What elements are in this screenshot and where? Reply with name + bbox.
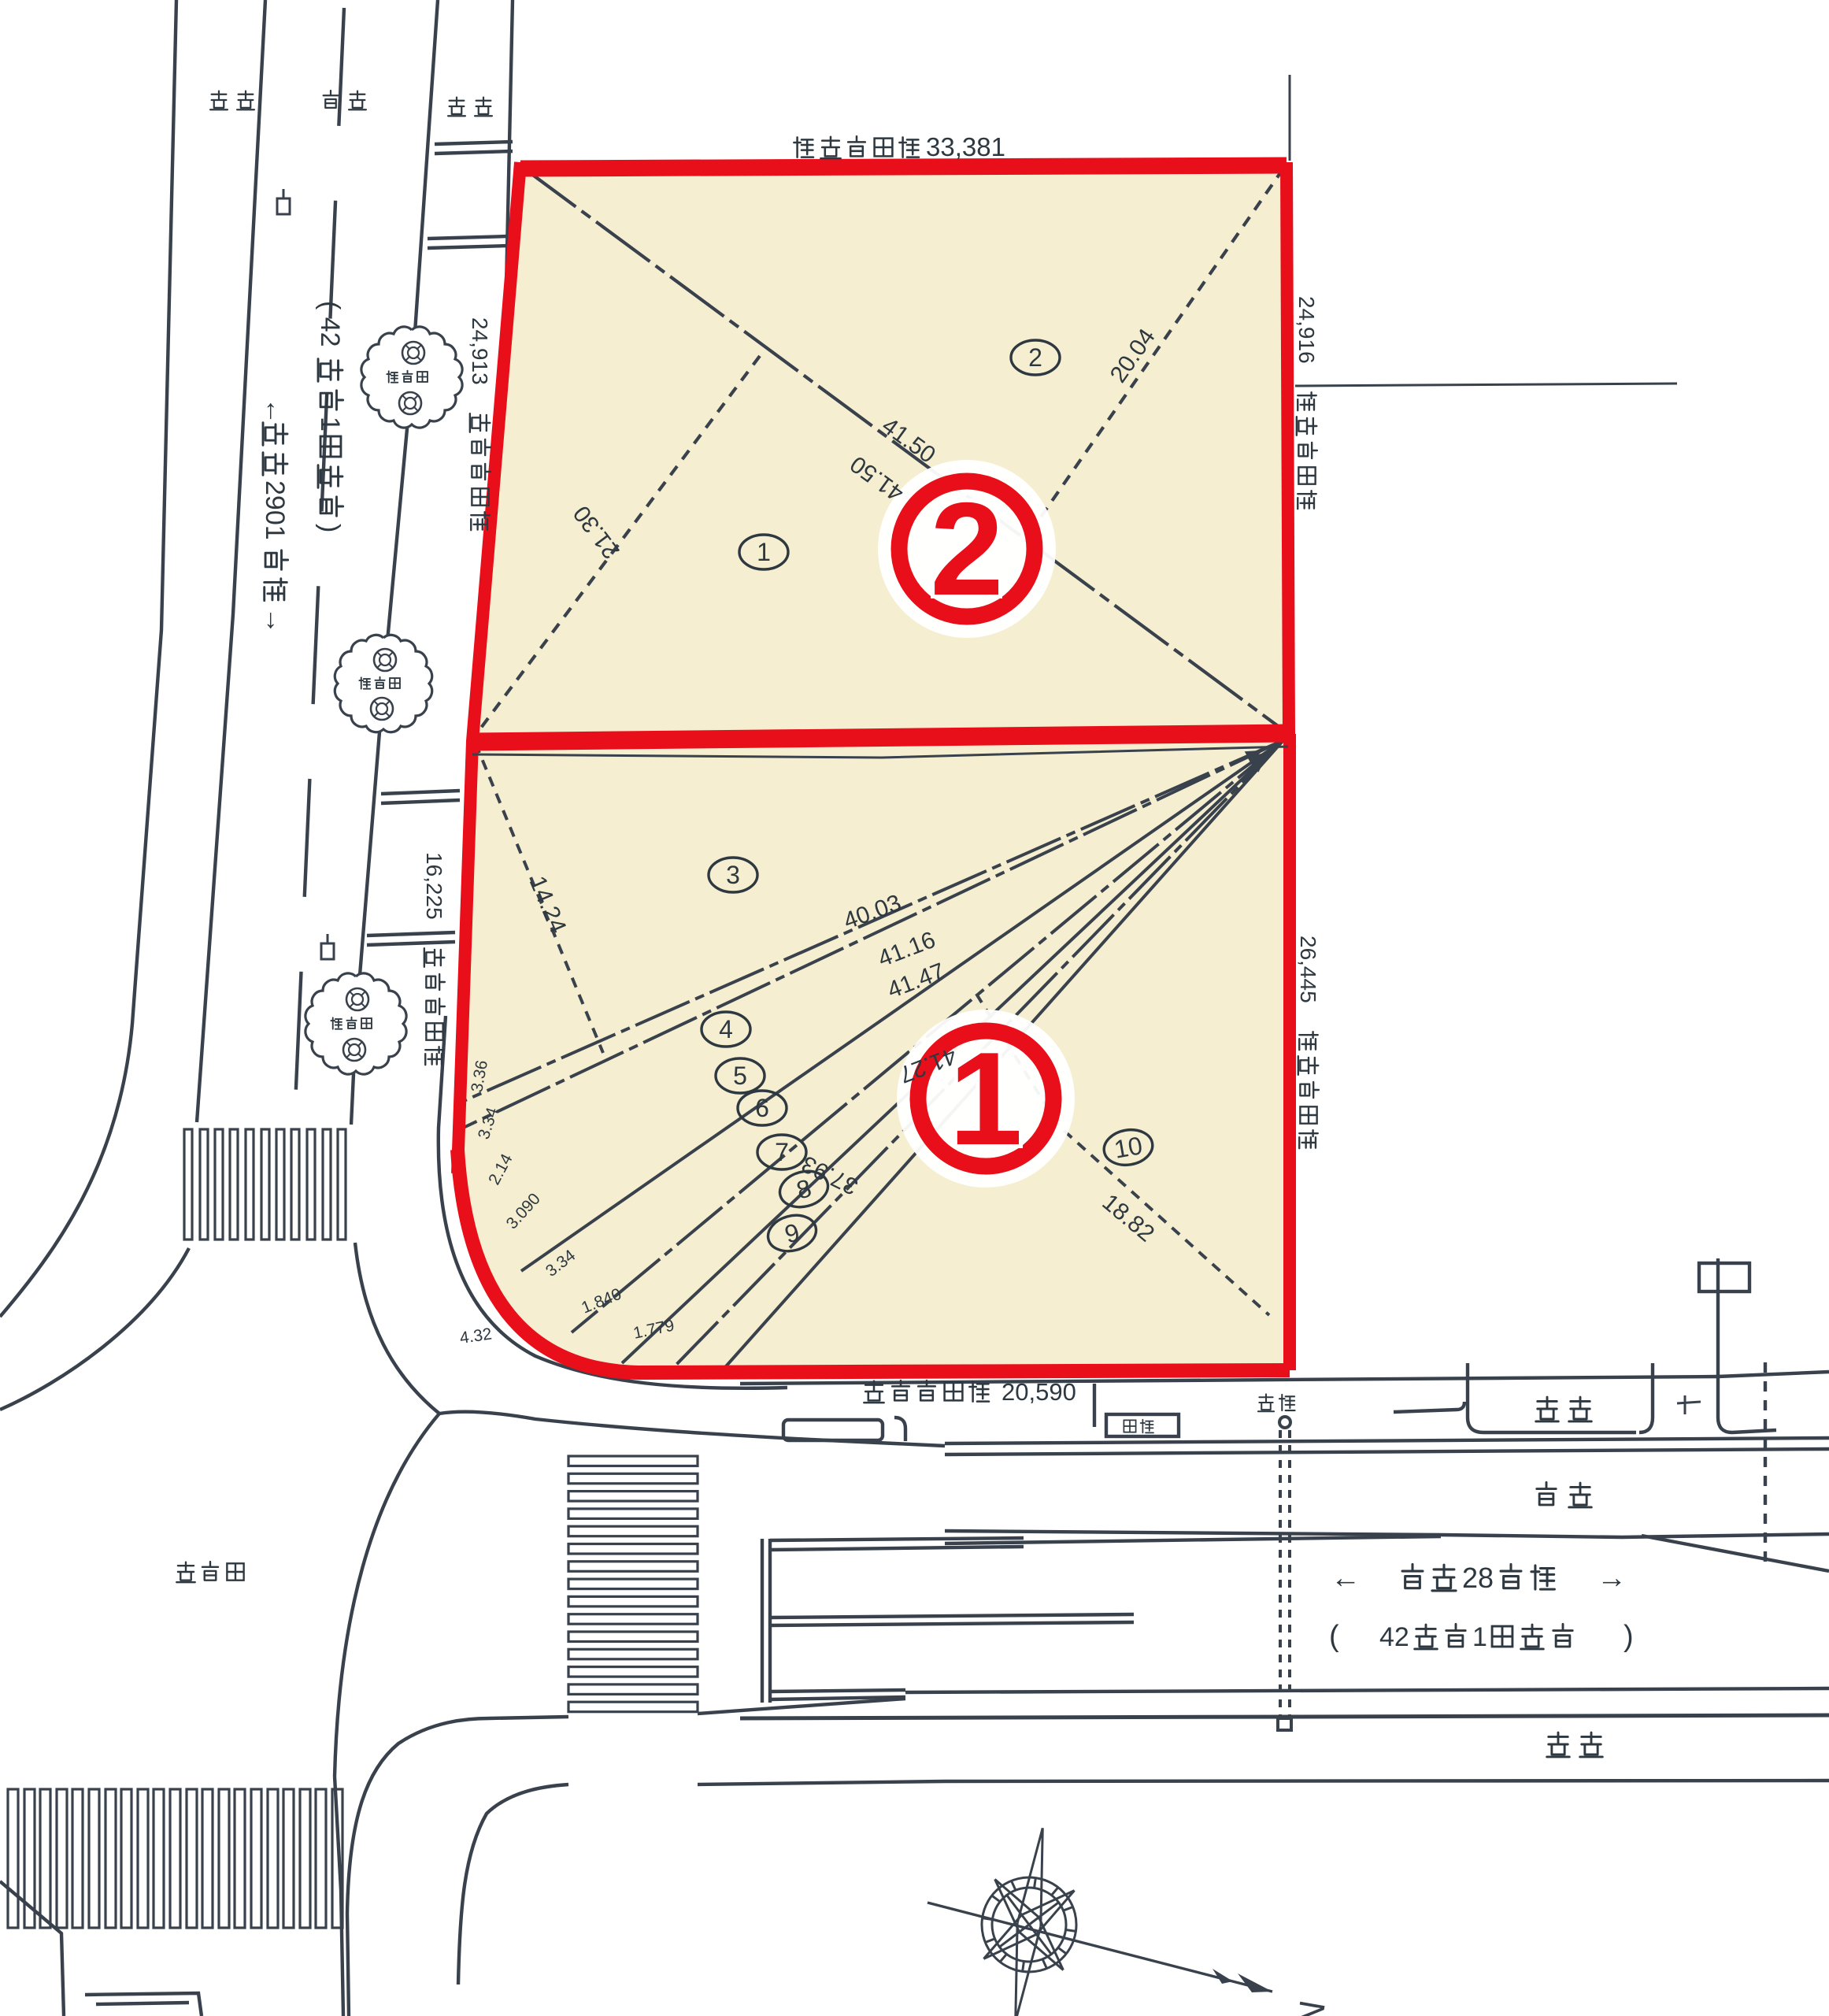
svg-text:6: 6 [755, 1094, 769, 1122]
svg-text:24,913: 24,913 [468, 317, 492, 385]
svg-text:1: 1 [315, 417, 345, 432]
svg-text:7: 7 [775, 1138, 789, 1166]
svg-text:←: ← [1331, 1562, 1361, 1595]
svg-text:): ) [315, 524, 345, 532]
svg-text:33,381: 33,381 [926, 132, 1005, 161]
svg-text:28: 28 [1462, 1562, 1494, 1594]
svg-text:2901: 2901 [260, 480, 290, 540]
svg-text:24,916: 24,916 [1294, 296, 1319, 364]
svg-text:1: 1 [949, 1025, 1022, 1173]
svg-text:→: → [260, 607, 290, 634]
svg-text:( 42: ( 42 [315, 301, 345, 347]
svg-text:42: 42 [1379, 1622, 1409, 1652]
svg-text:3: 3 [726, 861, 740, 889]
svg-text:1: 1 [757, 538, 771, 566]
svg-text:2: 2 [1028, 343, 1042, 372]
svg-text:→: → [1597, 1562, 1627, 1595]
svg-text:26,445: 26,445 [1296, 936, 1320, 1003]
svg-text:1: 1 [1472, 1622, 1487, 1652]
svg-text:): ) [1624, 1620, 1634, 1653]
svg-text:←: ← [260, 398, 290, 424]
svg-text:4: 4 [719, 1015, 733, 1043]
svg-text:16,225: 16,225 [422, 852, 446, 920]
svg-text:20,590: 20,590 [1002, 1378, 1076, 1406]
svg-text:5: 5 [733, 1062, 747, 1090]
svg-text:10: 10 [1112, 1131, 1144, 1164]
svg-text:(: ( [1329, 1620, 1339, 1653]
svg-text:2: 2 [930, 475, 1003, 623]
